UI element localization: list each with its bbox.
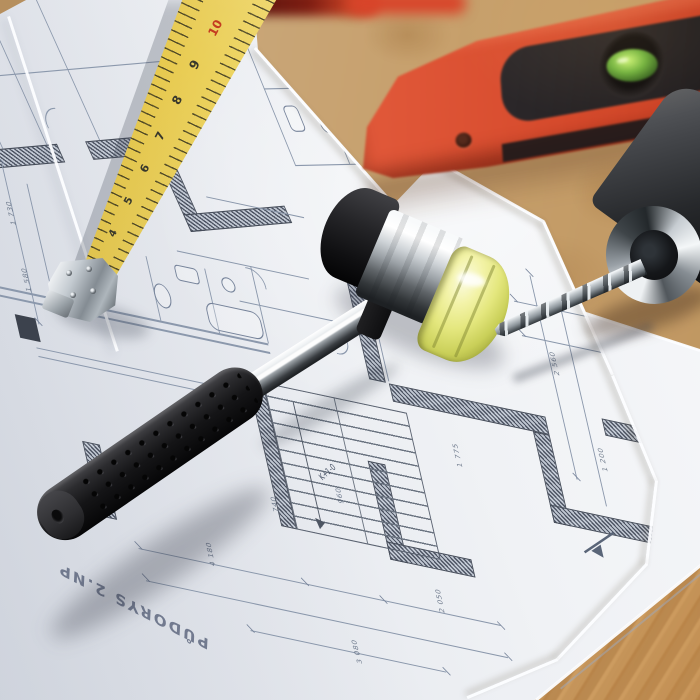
hook-rivet [70, 292, 76, 298]
level-vial-window [597, 26, 667, 104]
section-marker-triangle [591, 545, 608, 561]
handle-lanyard-hole [49, 507, 67, 526]
yellow-tip-specular [456, 271, 486, 289]
hook-rivet [66, 270, 72, 276]
hook-rivet [86, 266, 92, 272]
blurred-red-tool [348, 0, 466, 14]
hook-rivet [90, 288, 96, 294]
photo-construction-tools-blueprint: 4 180 1 730 1 580 3 080 2 050 1 775 960 … [0, 0, 700, 700]
fixture [282, 105, 307, 132]
level-vial [605, 49, 659, 82]
